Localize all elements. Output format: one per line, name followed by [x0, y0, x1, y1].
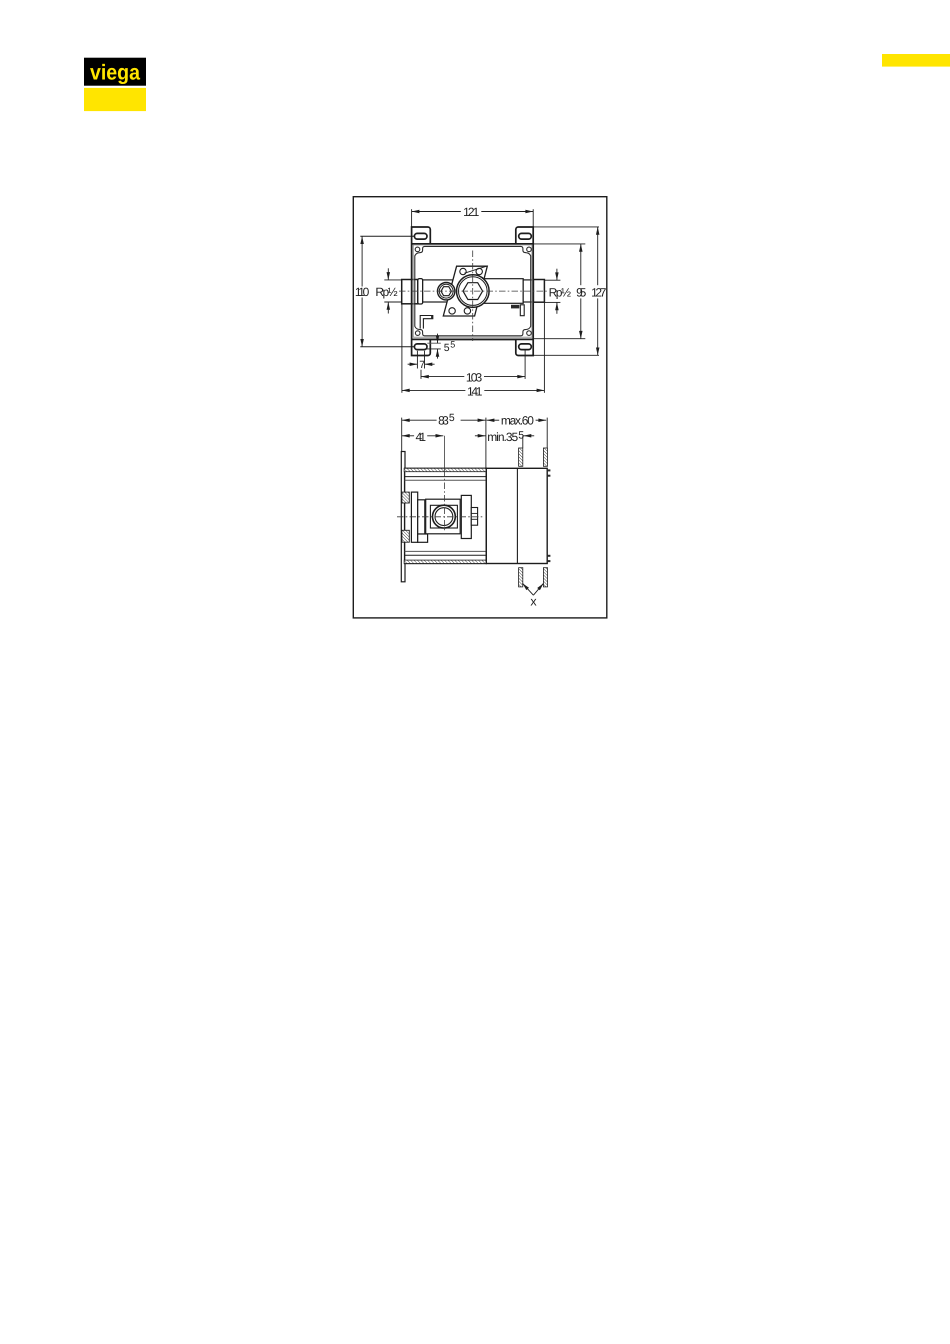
svg-text:127: 127 [591, 286, 607, 300]
svg-text:110: 110 [355, 285, 370, 299]
svg-text:5: 5 [444, 342, 450, 354]
svg-text:121: 121 [463, 205, 480, 219]
svg-text:95: 95 [576, 286, 587, 300]
svg-text:max.60: max.60 [501, 413, 534, 427]
svg-text:141: 141 [467, 385, 483, 399]
svg-text:41: 41 [416, 430, 427, 444]
svg-text:103: 103 [466, 371, 483, 385]
svg-text:Rp½: Rp½ [549, 286, 571, 300]
svg-text:Rp½: Rp½ [375, 285, 397, 299]
svg-text:83: 83 [438, 413, 449, 427]
svg-text:5: 5 [518, 430, 524, 442]
svg-text:x: x [530, 595, 537, 609]
svg-text:viega: viega [90, 61, 141, 85]
svg-text:5: 5 [450, 339, 455, 349]
svg-text:min.35: min.35 [487, 430, 518, 444]
svg-text:5: 5 [449, 412, 455, 424]
svg-text:7: 7 [419, 359, 425, 371]
